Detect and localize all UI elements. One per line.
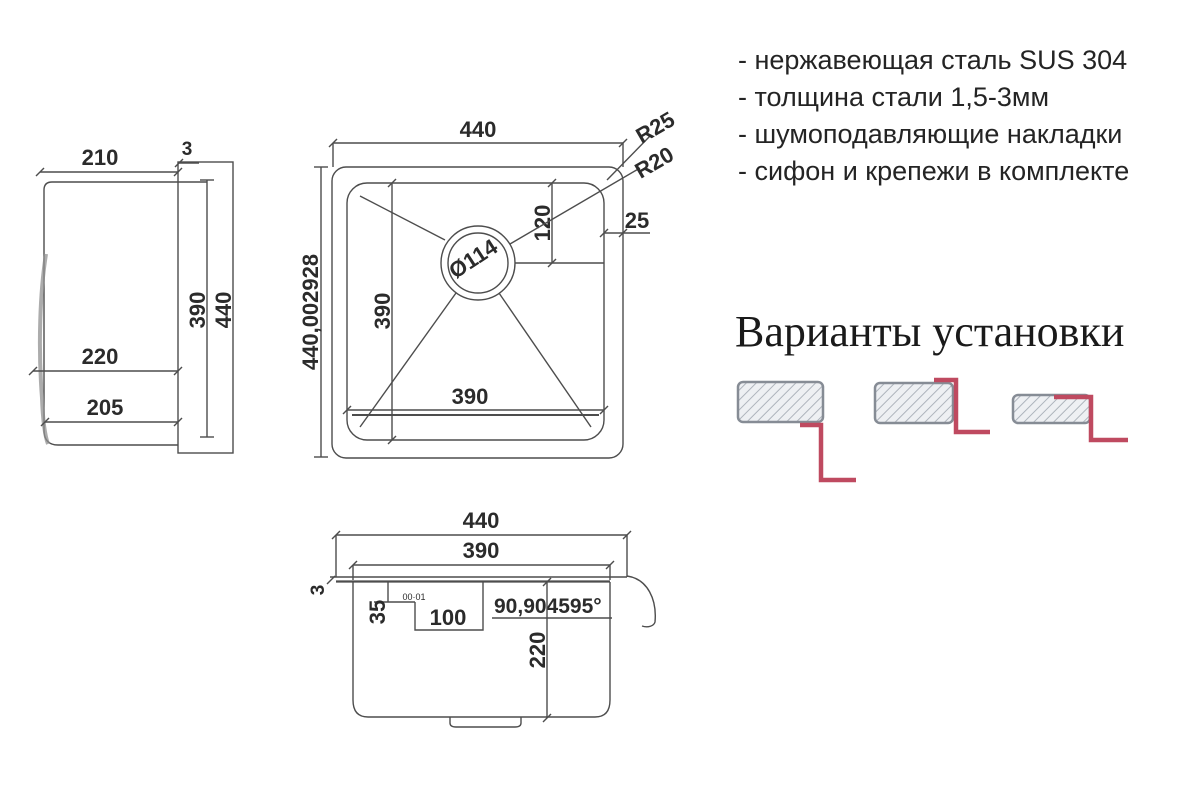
install-variants [738,380,1128,480]
dim-210: 210 [36,145,182,176]
dim-220-side-label: 220 [82,344,119,369]
dim-angle: 90,904595° [492,595,612,618]
drain-fitting [450,717,521,727]
dim-35: 35 [365,582,415,624]
dim-440-side-label: 440 [211,292,236,329]
dim-390-side: 390 [185,180,214,437]
dim-390-vert-label: 390 [370,293,395,330]
dim-390-vertical: 390 [370,179,396,444]
side-bowl-outline [44,182,207,445]
dim-440-top-label: 440 [460,117,497,142]
dim-220-side: 220 [29,344,182,375]
countertop-1 [738,382,823,422]
dim-390-bottom: 390 [343,384,608,414]
dim-rim-3-front: 3 [308,576,335,595]
install-options-title: Варианты установки [735,306,1124,357]
sink-datasheet: 210 3 390 440 220 [0,0,1200,798]
dim-35-label: 35 [365,600,390,624]
tiny-marks-label: 00·01 [402,592,425,602]
spec-item-included: - сифон и крепежи в комплекте [738,153,1129,190]
dim-440002928-label: 440,002928 [298,254,323,370]
sink-profile-red-1 [800,425,856,480]
drain-diameter-label: Ø114 [444,234,502,284]
dim-25: 25 [600,208,650,237]
specs-list: - нержавеющая сталь SUS 304 - толщина ст… [738,42,1129,190]
diag-topleft [360,196,445,240]
countertop-2 [875,383,953,423]
dim-205-side-label: 205 [87,395,124,420]
install-variant-undermount [738,382,856,480]
spec-item-material: - нержавеющая сталь SUS 304 [738,42,1129,79]
rim-edge-curve [627,576,655,627]
dim-210-label: 210 [82,145,119,170]
dim-205-side: 205 [41,395,182,426]
dim-440-left: 440,002928 [298,167,328,457]
r25-label: R25 [632,107,679,149]
dim-390-side-label: 390 [185,292,210,329]
dim-3-front-label: 3 [308,585,329,596]
spec-item-thickness: - толщина стали 1,5-3мм [738,79,1129,116]
dim-390-front: 390 [349,538,614,580]
dim-120: 120 [515,179,604,267]
install-variant-overmount [1013,395,1128,440]
dim-390-front-label: 390 [463,538,500,563]
dim-25-label: 25 [625,208,649,233]
dim-100-label: 100 [430,605,467,630]
angle-label: 90,904595° [494,595,602,618]
dim-220-front-label: 220 [525,632,550,669]
side-view-drawing: 210 3 390 440 220 [29,139,236,453]
install-variant-flushmount [875,380,990,432]
spec-item-soundproofing: - шумоподавляющие накладки [738,116,1129,153]
dim-120-label: 120 [530,205,555,242]
top-view-drawing: 440 440,002928 390 120 [298,107,679,458]
front-view-drawing: 440 390 3 35 00·01 [308,508,655,727]
dim-440-front-label: 440 [463,508,500,533]
dim-390-bottom-label: 390 [452,384,489,409]
dim-3-side-label: 3 [182,139,193,160]
diag-bottomright [499,293,591,427]
dim-440-top: 440 [329,117,627,167]
